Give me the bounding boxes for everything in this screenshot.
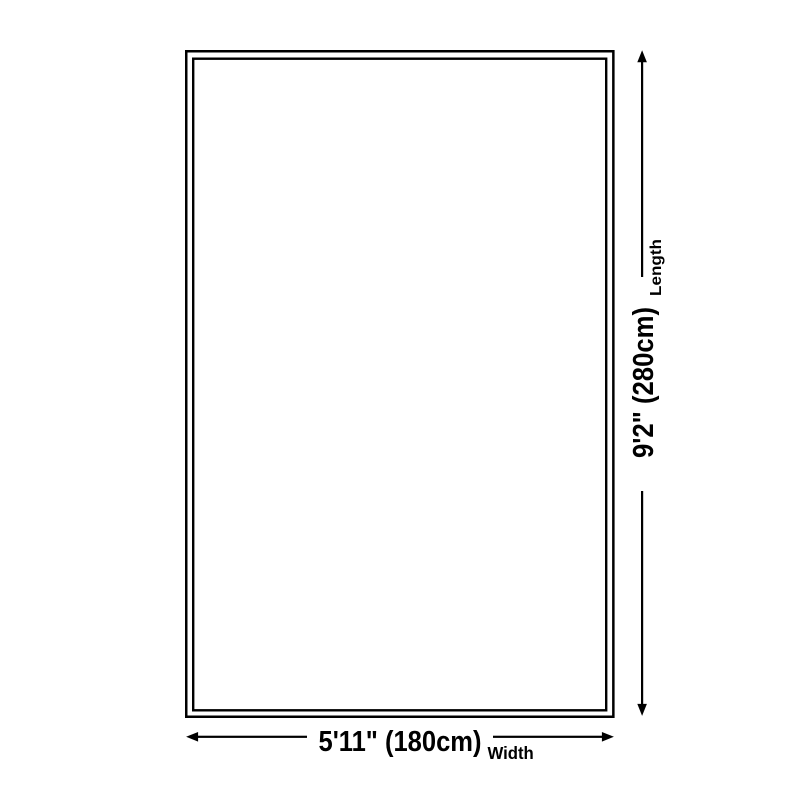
svg-text:5'11" (180cm): 5'11" (180cm) (319, 726, 482, 758)
svg-text:Width: Width (487, 743, 533, 763)
svg-text:Length: Length (648, 239, 665, 296)
svg-text:9'2" (280cm): 9'2" (280cm) (628, 307, 660, 458)
